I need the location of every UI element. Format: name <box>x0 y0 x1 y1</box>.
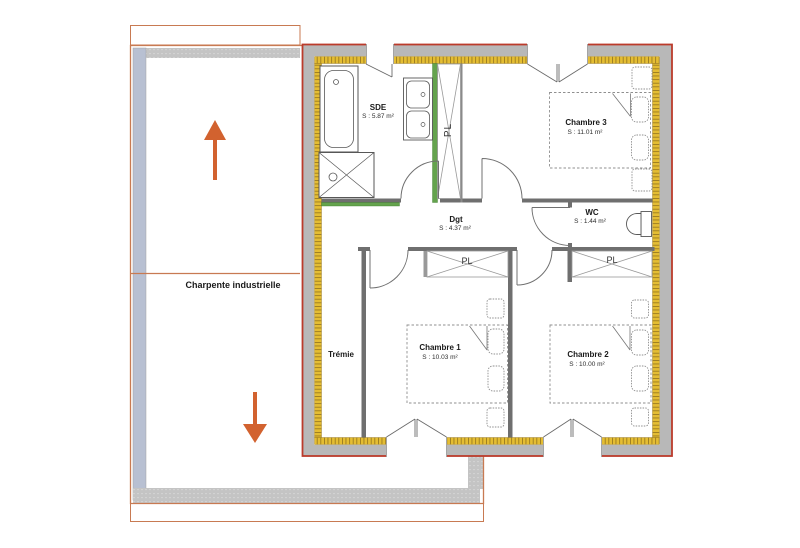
closet-label-chambre1: PL <box>461 257 472 266</box>
closet-label-chambre2: PL <box>606 256 617 265</box>
window-chambre3 <box>527 42 588 64</box>
tremie-label: Trémie <box>328 351 354 359</box>
room-area-dgt: S : 4.37 m² <box>439 226 471 233</box>
up-arrow-icon <box>204 120 226 180</box>
annex-top-strip <box>131 26 301 46</box>
room-area-sde: S : 5.87 m² <box>362 114 394 121</box>
charpente-label: Charpente industrielle <box>185 281 280 290</box>
room-label-wc: WC <box>585 209 598 217</box>
wall-chambre1-chambre2 <box>508 251 513 438</box>
window-chambre2 <box>543 436 602 458</box>
annex-right-stub-wall <box>468 456 483 489</box>
closet-label-hall: PL <box>444 123 454 137</box>
floor-plan-drawing <box>0 0 800 548</box>
window-chambre1 <box>386 436 447 458</box>
annex-top-wall <box>133 48 300 58</box>
annex-bottom-wall <box>133 488 480 503</box>
floor-plan: SDE S : 5.87 m² Chambre 3 S : 11.01 m² D… <box>0 0 800 548</box>
down-arrow-icon <box>243 392 267 443</box>
room-label-chambre1: Chambre 1 <box>419 344 460 352</box>
room-area-chambre3: S : 11.01 m² <box>568 130 603 137</box>
shower <box>319 153 374 198</box>
bathtub <box>320 66 358 152</box>
annex-bottom-strip <box>131 504 484 522</box>
washbasin <box>404 78 433 140</box>
plan-structure <box>303 42 673 458</box>
room-label-dgt: Dgt <box>449 216 462 224</box>
room-area-chambre1: S : 10.03 m² <box>422 355 457 362</box>
room-label-chambre3: Chambre 3 <box>565 119 606 127</box>
room-label-sde: SDE <box>370 104 386 112</box>
insulation-bottom <box>315 438 660 445</box>
room-area-wc: S : 1.44 m² <box>574 219 606 226</box>
wall-tremie-chambre1 <box>362 247 367 438</box>
room-label-chambre2: Chambre 2 <box>567 351 608 359</box>
window-sde <box>366 42 394 64</box>
room-area-chambre2: S : 10.00 m² <box>569 362 604 369</box>
